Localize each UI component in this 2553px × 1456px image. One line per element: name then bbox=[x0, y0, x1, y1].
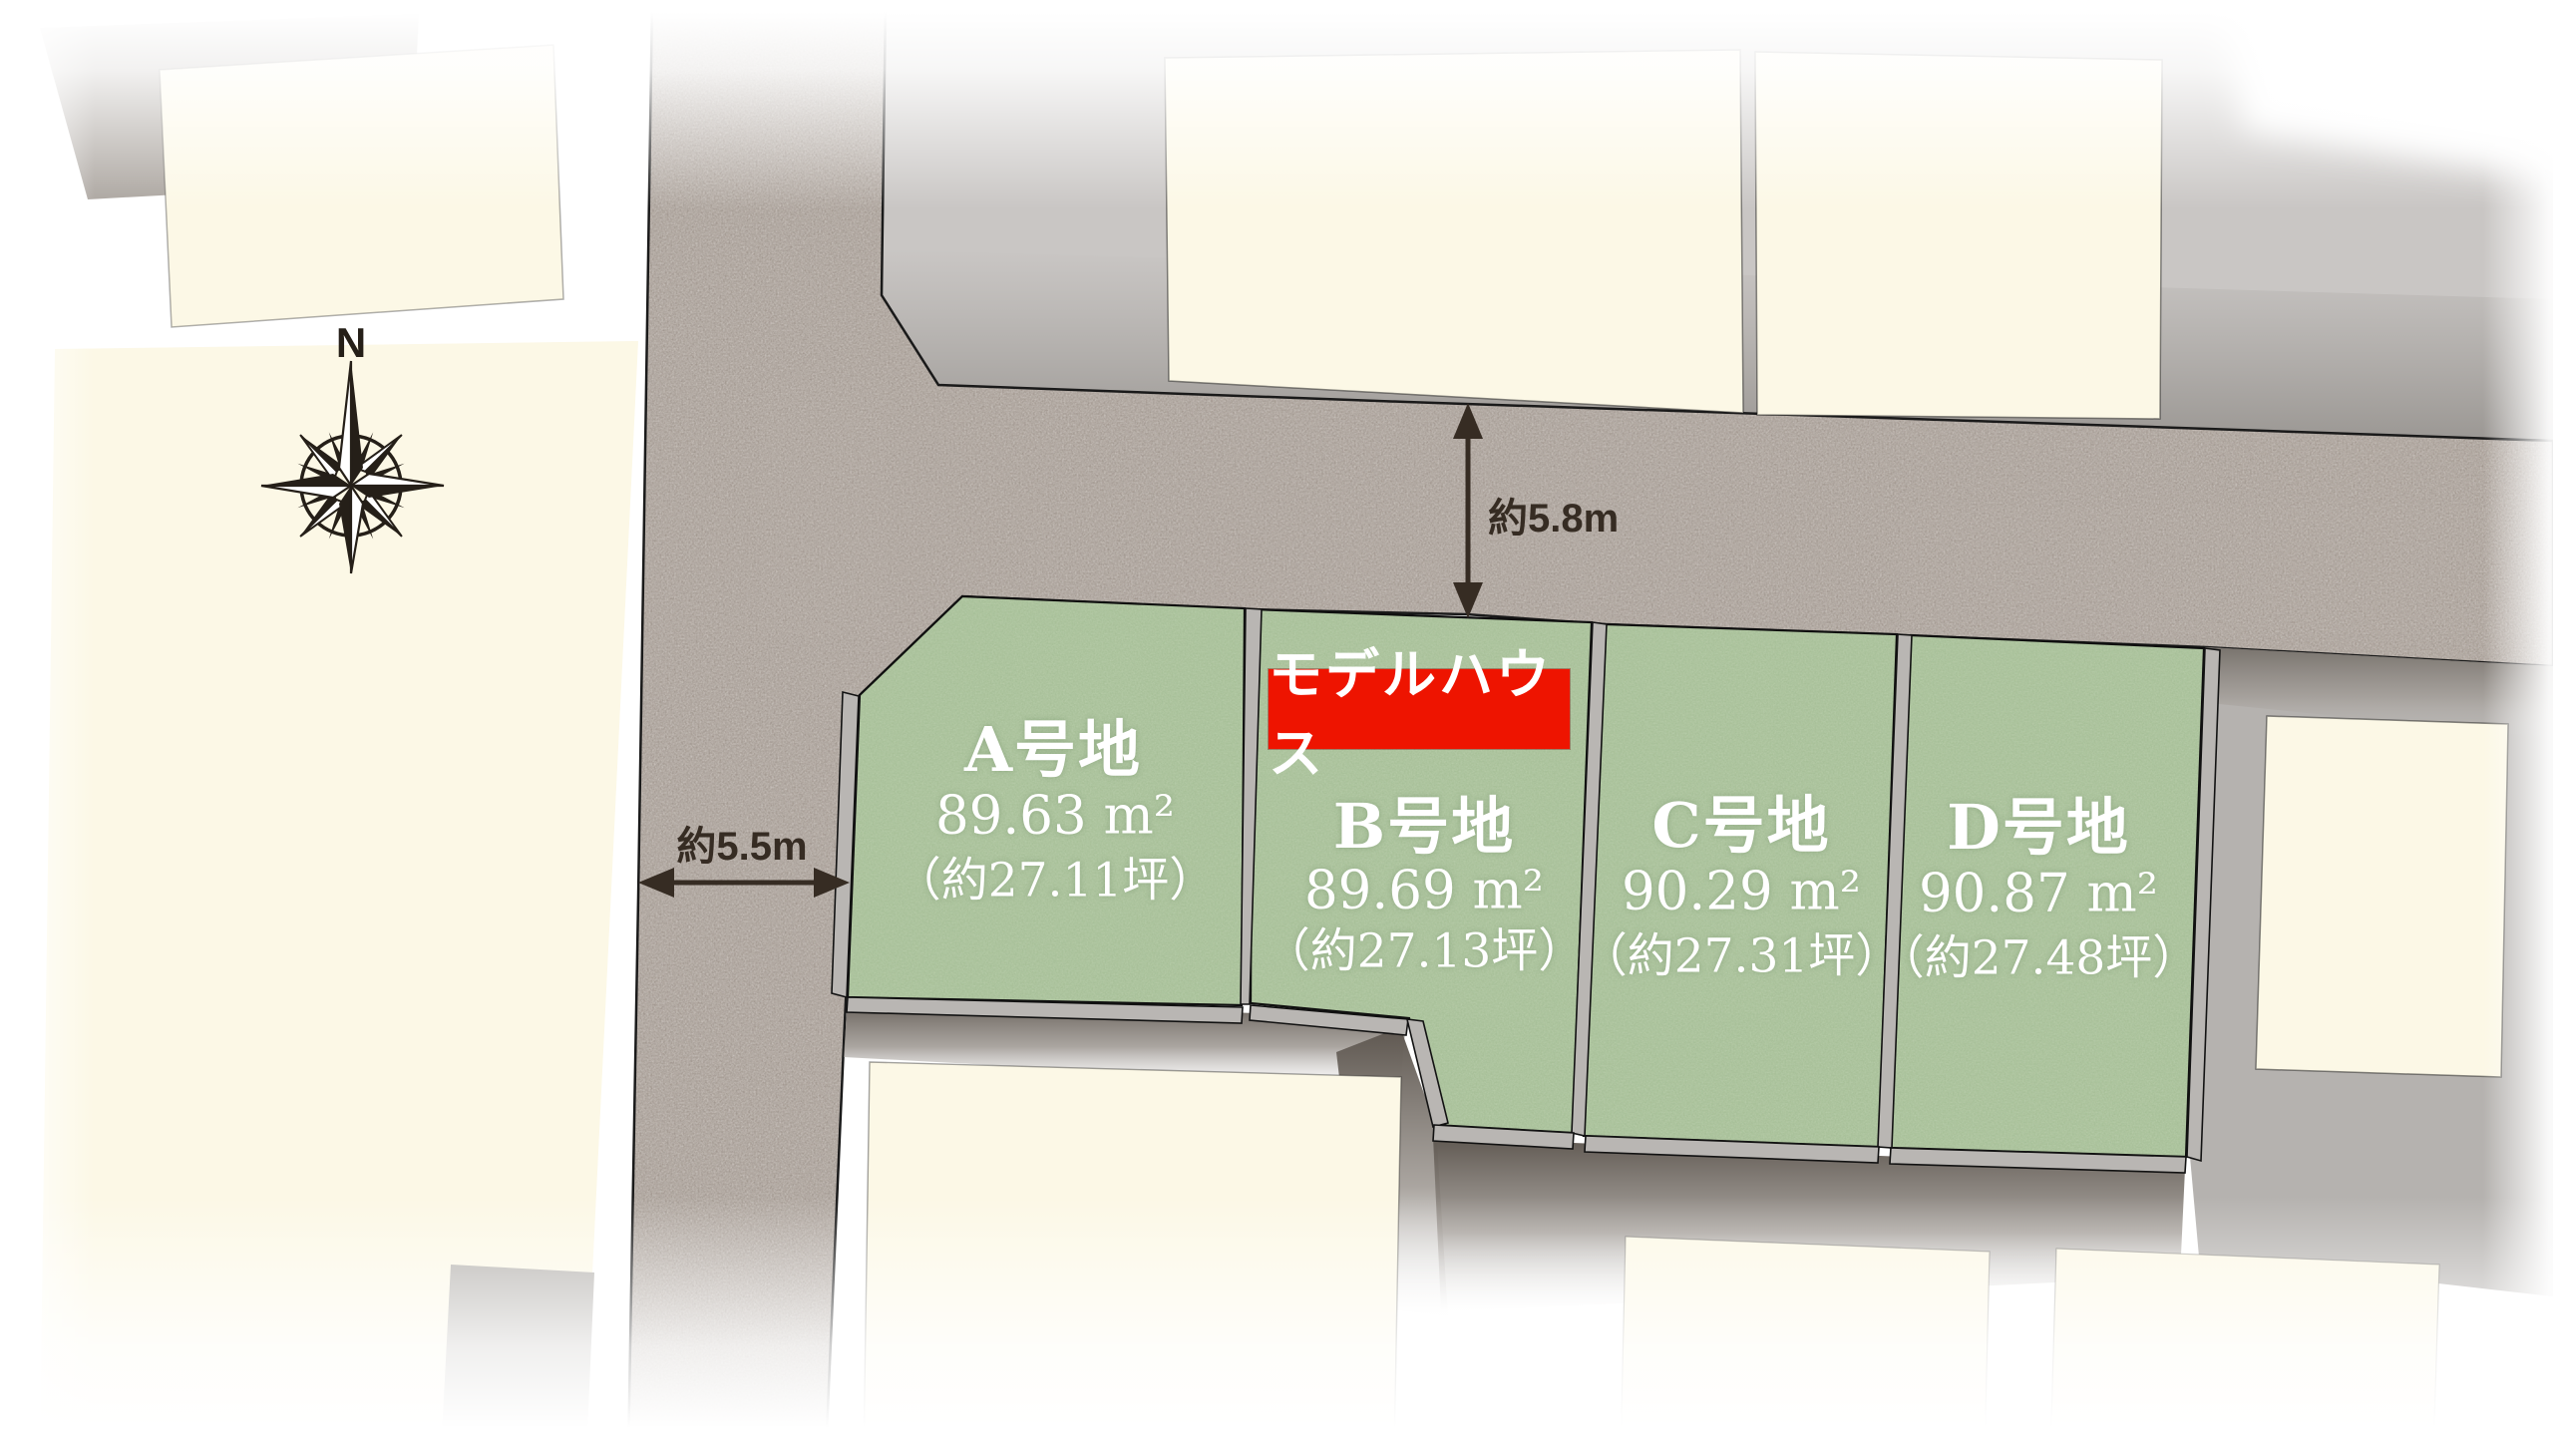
lot-a-area: 89.63 m² bbox=[935, 786, 1175, 847]
lot-subdivision-map: N 約5.8m 約5.5m モデルハウス A号地 89.63 m² （約27.1… bbox=[0, 0, 2553, 1456]
lot-c-name: C号地 bbox=[1651, 775, 1830, 865]
road-width-annotation-west: 約5.5m bbox=[676, 814, 807, 872]
south-cream-building-2 bbox=[1621, 1237, 1990, 1456]
model-house-badge-label: モデルハウス bbox=[1269, 630, 1570, 788]
lot-b-name: B号地 bbox=[1333, 776, 1515, 866]
north-cream-building-2 bbox=[1755, 52, 2162, 419]
south-cream-building-1 bbox=[864, 1062, 1401, 1456]
northwest-cream-building bbox=[160, 45, 563, 327]
lot-c-tsubo: （約27.31坪） bbox=[1581, 917, 1903, 986]
lot-a-name: A号地 bbox=[964, 699, 1142, 789]
lot-b-tsubo: （約27.13坪） bbox=[1264, 912, 1586, 981]
lot-c-area: 90.29 m² bbox=[1622, 862, 1861, 922]
lot-a-tsubo: （約27.11坪） bbox=[895, 842, 1217, 910]
road-width-annotation-north: 約5.8m bbox=[1488, 486, 1619, 544]
lot-d-area: 90.87 m² bbox=[1919, 864, 2158, 924]
model-house-badge: モデルハウス bbox=[1269, 669, 1570, 749]
north-cream-building-1 bbox=[1165, 50, 1743, 413]
lot-d-name: D号地 bbox=[1947, 777, 2130, 867]
compass-north-label: N bbox=[336, 319, 366, 367]
southwest-gray-wedge bbox=[441, 1265, 594, 1456]
east-cream-building bbox=[2256, 716, 2508, 1077]
south-cream-building-3 bbox=[2050, 1249, 2439, 1456]
lot-d-tsubo: （約27.48坪） bbox=[1878, 919, 2200, 988]
